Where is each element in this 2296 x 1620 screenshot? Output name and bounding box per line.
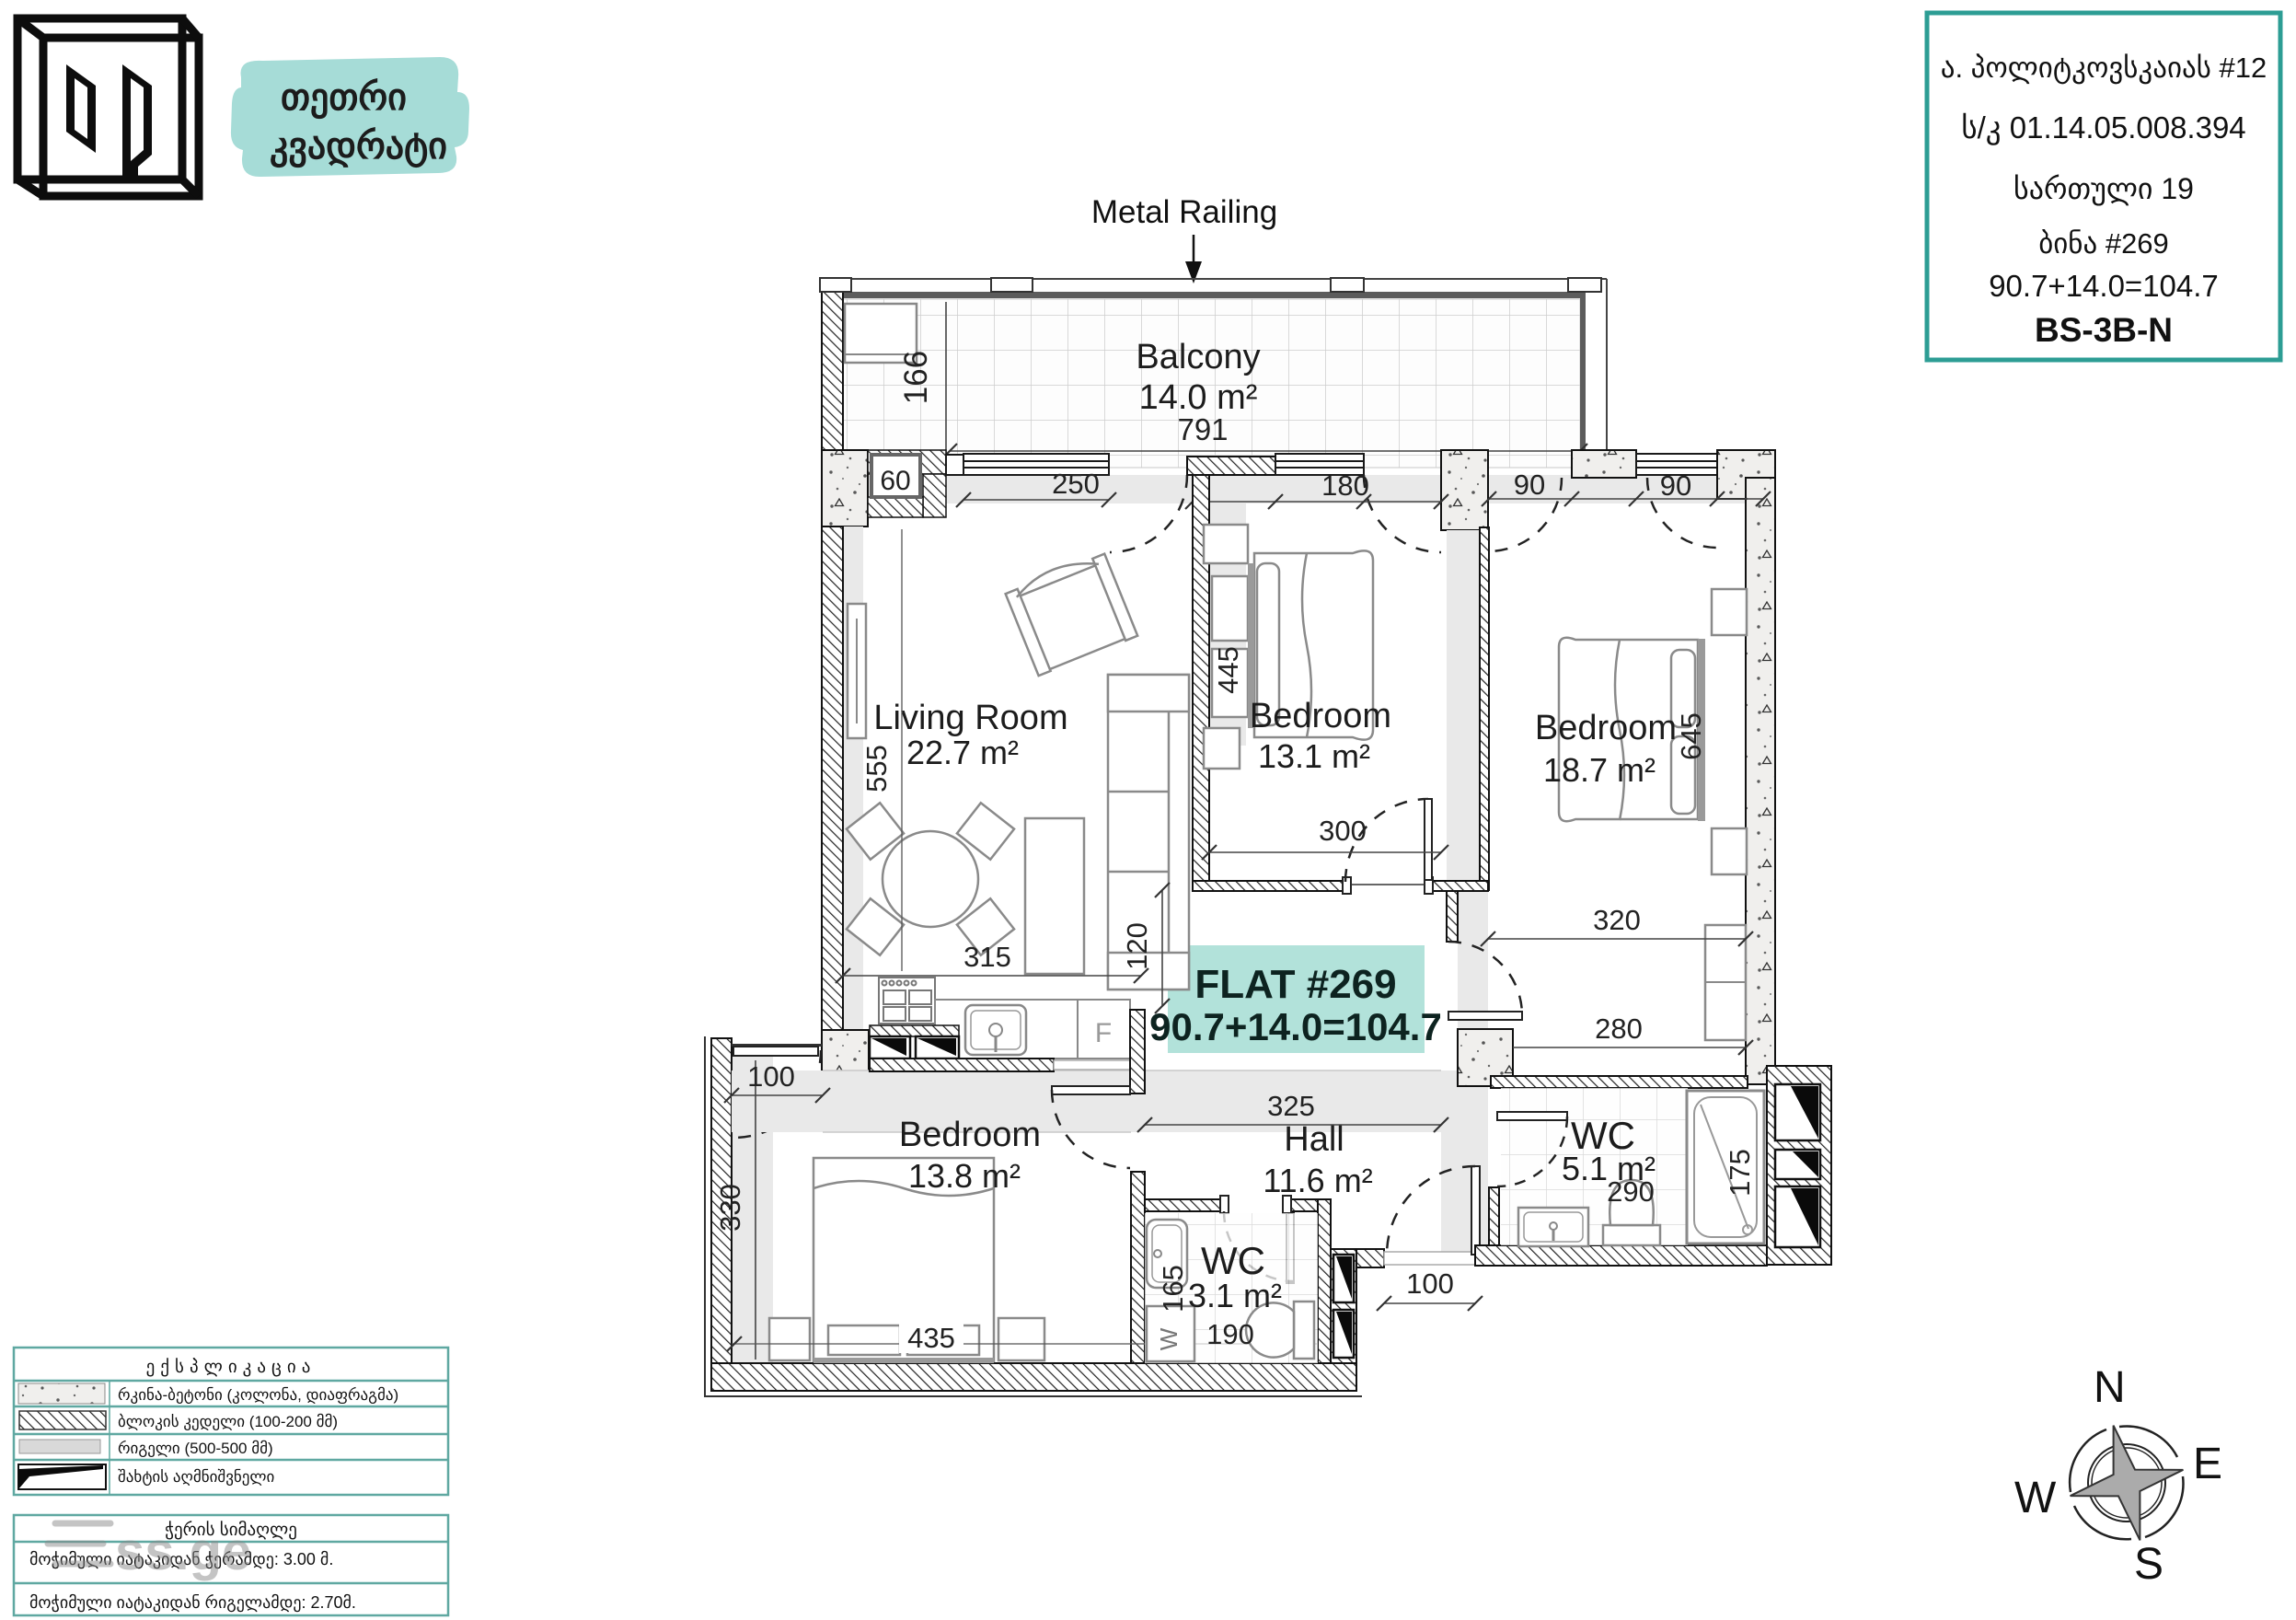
svg-text:ექსპლიკაცია: ექსპლიკაცია bbox=[146, 1358, 317, 1377]
svg-text:ბლოკის კედელი (100-200 მმ): ბლოკის კედელი (100-200 მმ) bbox=[118, 1413, 338, 1431]
svg-text:18.7 m²: 18.7 m² bbox=[1543, 751, 1656, 789]
svg-text:555: 555 bbox=[860, 745, 893, 793]
svg-text:315: 315 bbox=[963, 941, 1011, 973]
svg-text:W: W bbox=[1155, 1327, 1183, 1350]
svg-text:W: W bbox=[2014, 1474, 2057, 1522]
svg-text:791: 791 bbox=[1177, 412, 1228, 446]
svg-text:60: 60 bbox=[880, 466, 910, 496]
svg-text:120: 120 bbox=[1121, 922, 1153, 970]
svg-text:შახტის აღმნიშვნელი: შახტის აღმნიშვნელი bbox=[118, 1468, 274, 1487]
svg-text:250: 250 bbox=[1052, 468, 1100, 500]
svg-text:280: 280 bbox=[1595, 1012, 1643, 1045]
svg-text:FLAT #269: FLAT #269 bbox=[1194, 962, 1396, 1007]
svg-text:S: S bbox=[2134, 1540, 2163, 1589]
svg-text:მოჭიმული იატაკიდან რიგელამდე:: მოჭიმული იატაკიდან რიგელამდე: 2.70მ. bbox=[29, 1593, 356, 1613]
svg-text:ა. პოლიტკოვსკაიას #12: ა. პოლიტკოვსკაიას #12 bbox=[1941, 52, 2267, 85]
svg-text:180: 180 bbox=[1321, 469, 1369, 502]
svg-text:BS-3B-N: BS-3B-N bbox=[2035, 311, 2173, 349]
svg-text:Metal Railing: Metal Railing bbox=[1091, 194, 1277, 230]
svg-text:166: 166 bbox=[898, 351, 934, 404]
svg-text:90.7+14.0=104.7: 90.7+14.0=104.7 bbox=[1989, 269, 2219, 303]
svg-text:165: 165 bbox=[1157, 1265, 1189, 1313]
svg-text:ბინა #269: ბინა #269 bbox=[2038, 227, 2169, 260]
svg-text:330: 330 bbox=[714, 1184, 746, 1232]
svg-text:კვადრატი: კვადრატი bbox=[270, 126, 447, 168]
svg-text:რიგელი (500-500 მმ): რიგელი (500-500 მმ) bbox=[118, 1440, 273, 1458]
svg-text:290: 290 bbox=[1607, 1175, 1655, 1208]
svg-text:445: 445 bbox=[1212, 646, 1244, 694]
svg-text:3.1 m²: 3.1 m² bbox=[1188, 1277, 1282, 1314]
svg-text:175: 175 bbox=[1724, 1149, 1756, 1197]
svg-text:Bedroom: Bedroom bbox=[1250, 697, 1391, 735]
svg-text:100: 100 bbox=[1406, 1267, 1454, 1300]
svg-text:WC: WC bbox=[1201, 1239, 1265, 1282]
svg-text:300: 300 bbox=[1319, 815, 1367, 847]
svg-text:90: 90 bbox=[1660, 469, 1691, 502]
svg-text:N: N bbox=[2094, 1363, 2126, 1412]
svg-text:100: 100 bbox=[747, 1060, 795, 1093]
svg-text:190: 190 bbox=[1206, 1318, 1254, 1350]
svg-text:320: 320 bbox=[1593, 904, 1641, 936]
svg-text:Living Room: Living Room bbox=[873, 699, 1067, 737]
svg-text:Balcony: Balcony bbox=[1136, 338, 1260, 376]
svg-text:Bedroom: Bedroom bbox=[1535, 709, 1677, 747]
svg-text:Hall: Hall bbox=[1284, 1120, 1344, 1159]
svg-text:325: 325 bbox=[1267, 1090, 1315, 1122]
svg-text:90.7+14.0=104.7: 90.7+14.0=104.7 bbox=[1149, 1005, 1442, 1048]
svg-text:Bedroom: Bedroom bbox=[899, 1116, 1041, 1154]
svg-text:F: F bbox=[1095, 1018, 1112, 1048]
svg-text:13.1 m²: 13.1 m² bbox=[1258, 737, 1370, 775]
svg-text:13.8 m²: 13.8 m² bbox=[908, 1157, 1021, 1195]
svg-text:E: E bbox=[2193, 1440, 2222, 1488]
svg-text:სართული 19: სართული 19 bbox=[2013, 172, 2194, 206]
svg-text:645: 645 bbox=[1675, 712, 1707, 760]
svg-text:22.7 m²: 22.7 m² bbox=[906, 734, 1019, 771]
svg-text:435: 435 bbox=[907, 1322, 955, 1354]
svg-text:რკინა-ბეტონი (კოლონა, დიაფრაგმ: რკინა-ბეტონი (კოლონა, დიაფრაგმა) bbox=[118, 1386, 398, 1405]
svg-text:ss.ge: ss.ge bbox=[115, 1522, 251, 1581]
svg-text:90: 90 bbox=[1514, 469, 1545, 501]
svg-text:თეთრი: თეთრი bbox=[281, 77, 407, 120]
svg-text:14.0 m²: 14.0 m² bbox=[1139, 378, 1258, 417]
svg-text:ს/კ 01.14.05.008.394: ს/კ 01.14.05.008.394 bbox=[1961, 110, 2245, 145]
svg-text:11.6 m²: 11.6 m² bbox=[1263, 1162, 1372, 1199]
